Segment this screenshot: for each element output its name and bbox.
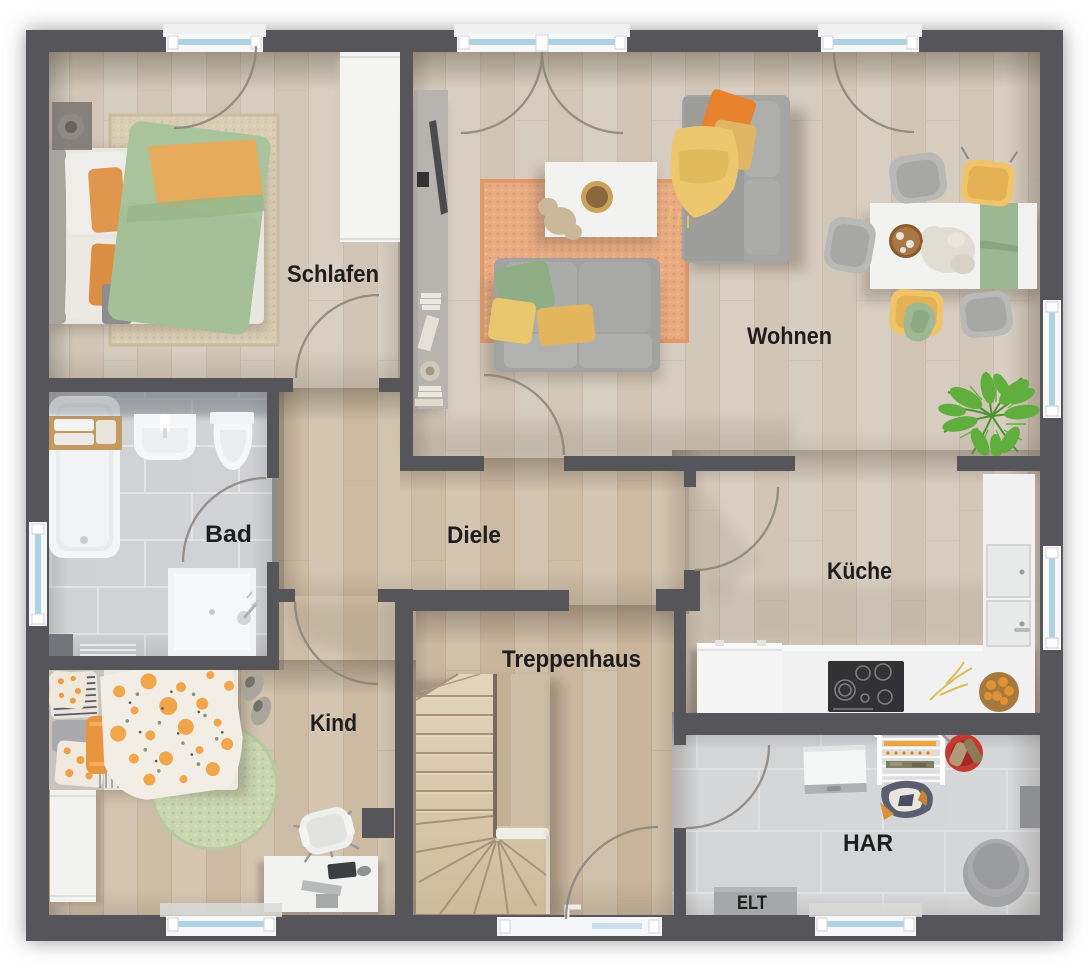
svg-text:Schlafen: Schlafen [287, 261, 379, 288]
svg-text:HAR: HAR [843, 830, 893, 857]
svg-text:Wohnen: Wohnen [747, 323, 832, 350]
svg-text:ELT: ELT [737, 893, 767, 914]
svg-text:Bad: Bad [205, 521, 252, 548]
svg-text:Diele: Diele [447, 522, 501, 549]
svg-text:Treppenhaus: Treppenhaus [502, 646, 641, 673]
svg-text:Kind: Kind [310, 710, 357, 737]
svg-text:Küche: Küche [827, 558, 892, 585]
